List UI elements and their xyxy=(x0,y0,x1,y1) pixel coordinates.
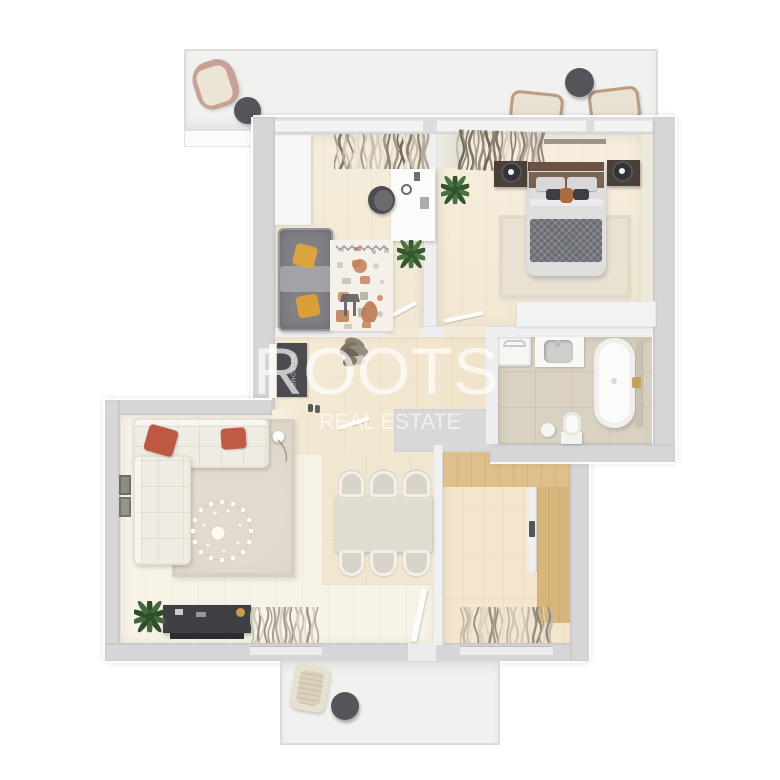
svg-text:ROOTS: ROOTS xyxy=(253,334,499,408)
svg-text:REAL ESTATE: REAL ESTATE xyxy=(319,409,461,434)
